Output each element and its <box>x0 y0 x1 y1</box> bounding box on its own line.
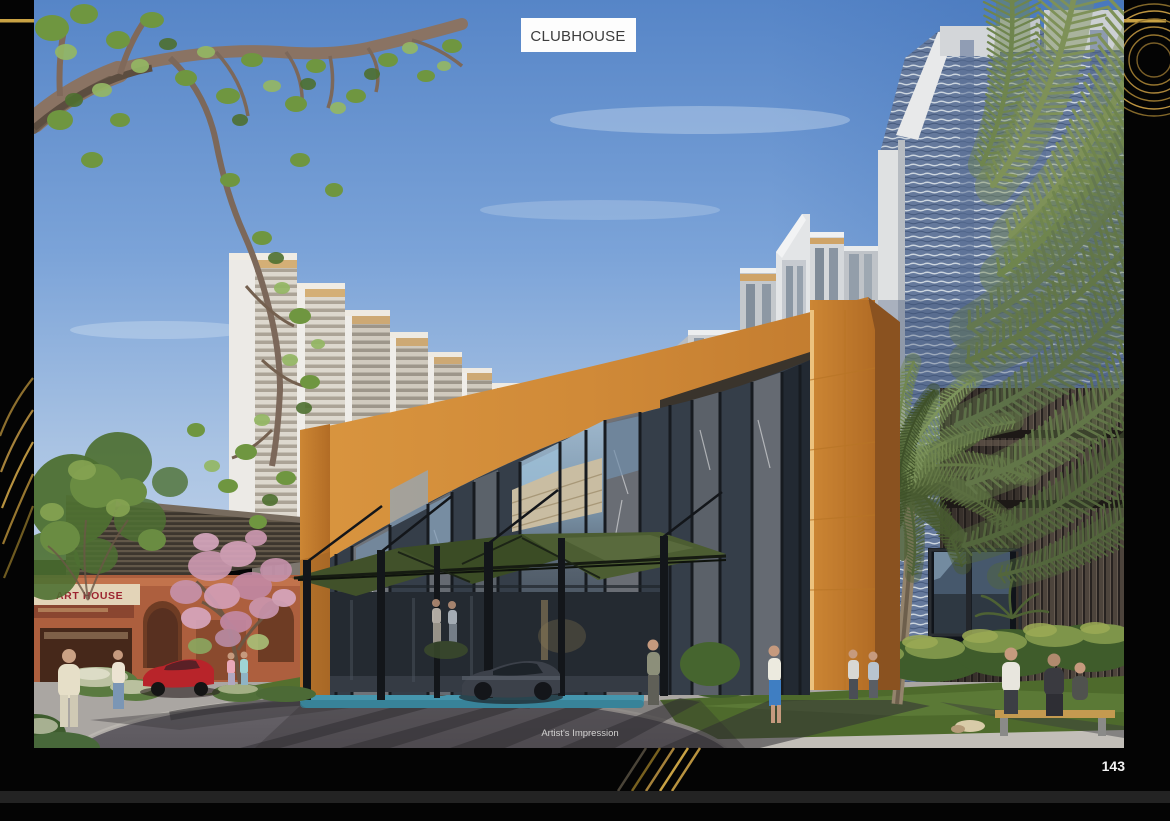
svg-text:143: 143 <box>1102 758 1126 774</box>
svg-text:Artist's Impression: Artist's Impression <box>541 728 618 739</box>
svg-text:CLUBHOUSE: CLUBHOUSE <box>530 28 625 45</box>
